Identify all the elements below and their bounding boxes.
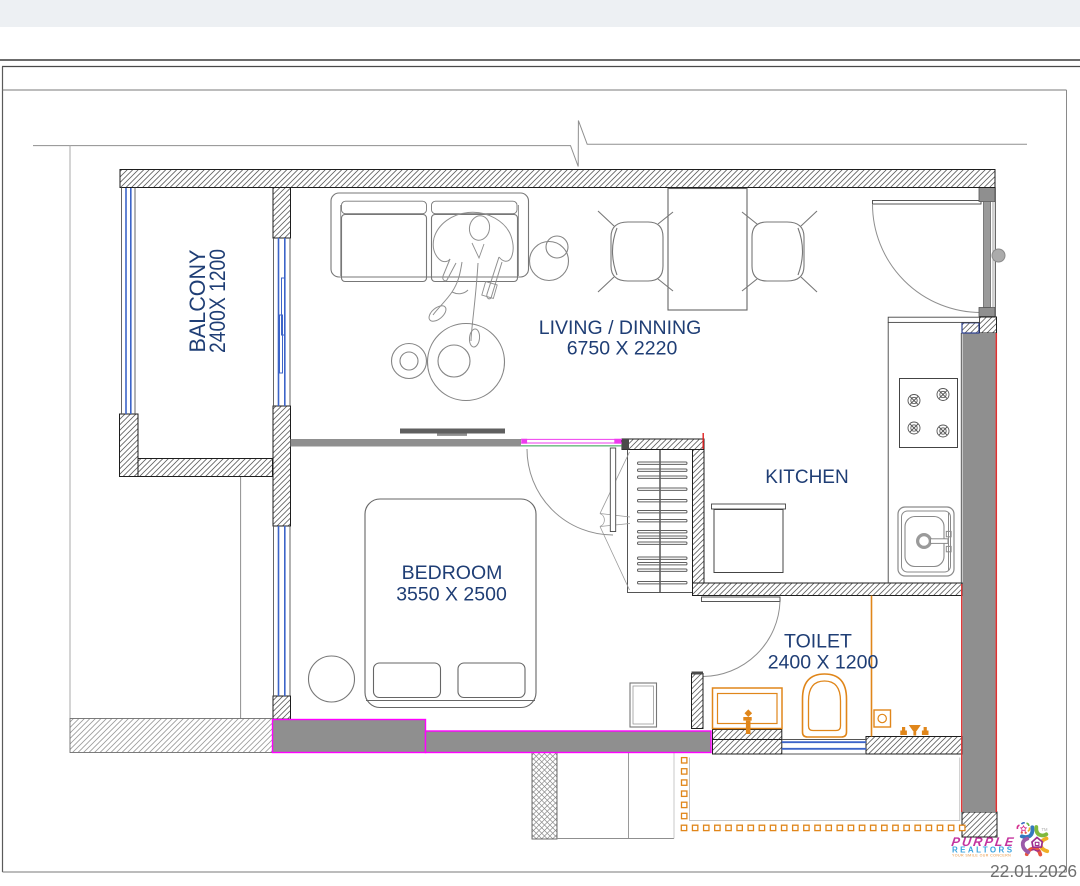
svg-text:LIVING / DINNING: LIVING / DINNING [539,317,702,339]
svg-text:22.01.2026: 22.01.2026 [990,861,1077,881]
svg-text:TM: TM [1042,827,1049,832]
svg-text:BEDROOM: BEDROOM [402,562,503,584]
svg-text:BALCONY2400X 1200: BALCONY2400X 1200 [185,249,230,353]
svg-text:2400 X 1200: 2400 X 1200 [768,652,879,674]
svg-text:TOILET: TOILET [784,631,852,653]
svg-text:YOUR SMILE OUR CONCERN: YOUR SMILE OUR CONCERN [952,854,1011,858]
svg-text:3550 X 2500: 3550 X 2500 [396,584,507,606]
svg-text:6750 X 2220: 6750 X 2220 [567,338,678,360]
svg-text:KITCHEN: KITCHEN [765,467,848,488]
